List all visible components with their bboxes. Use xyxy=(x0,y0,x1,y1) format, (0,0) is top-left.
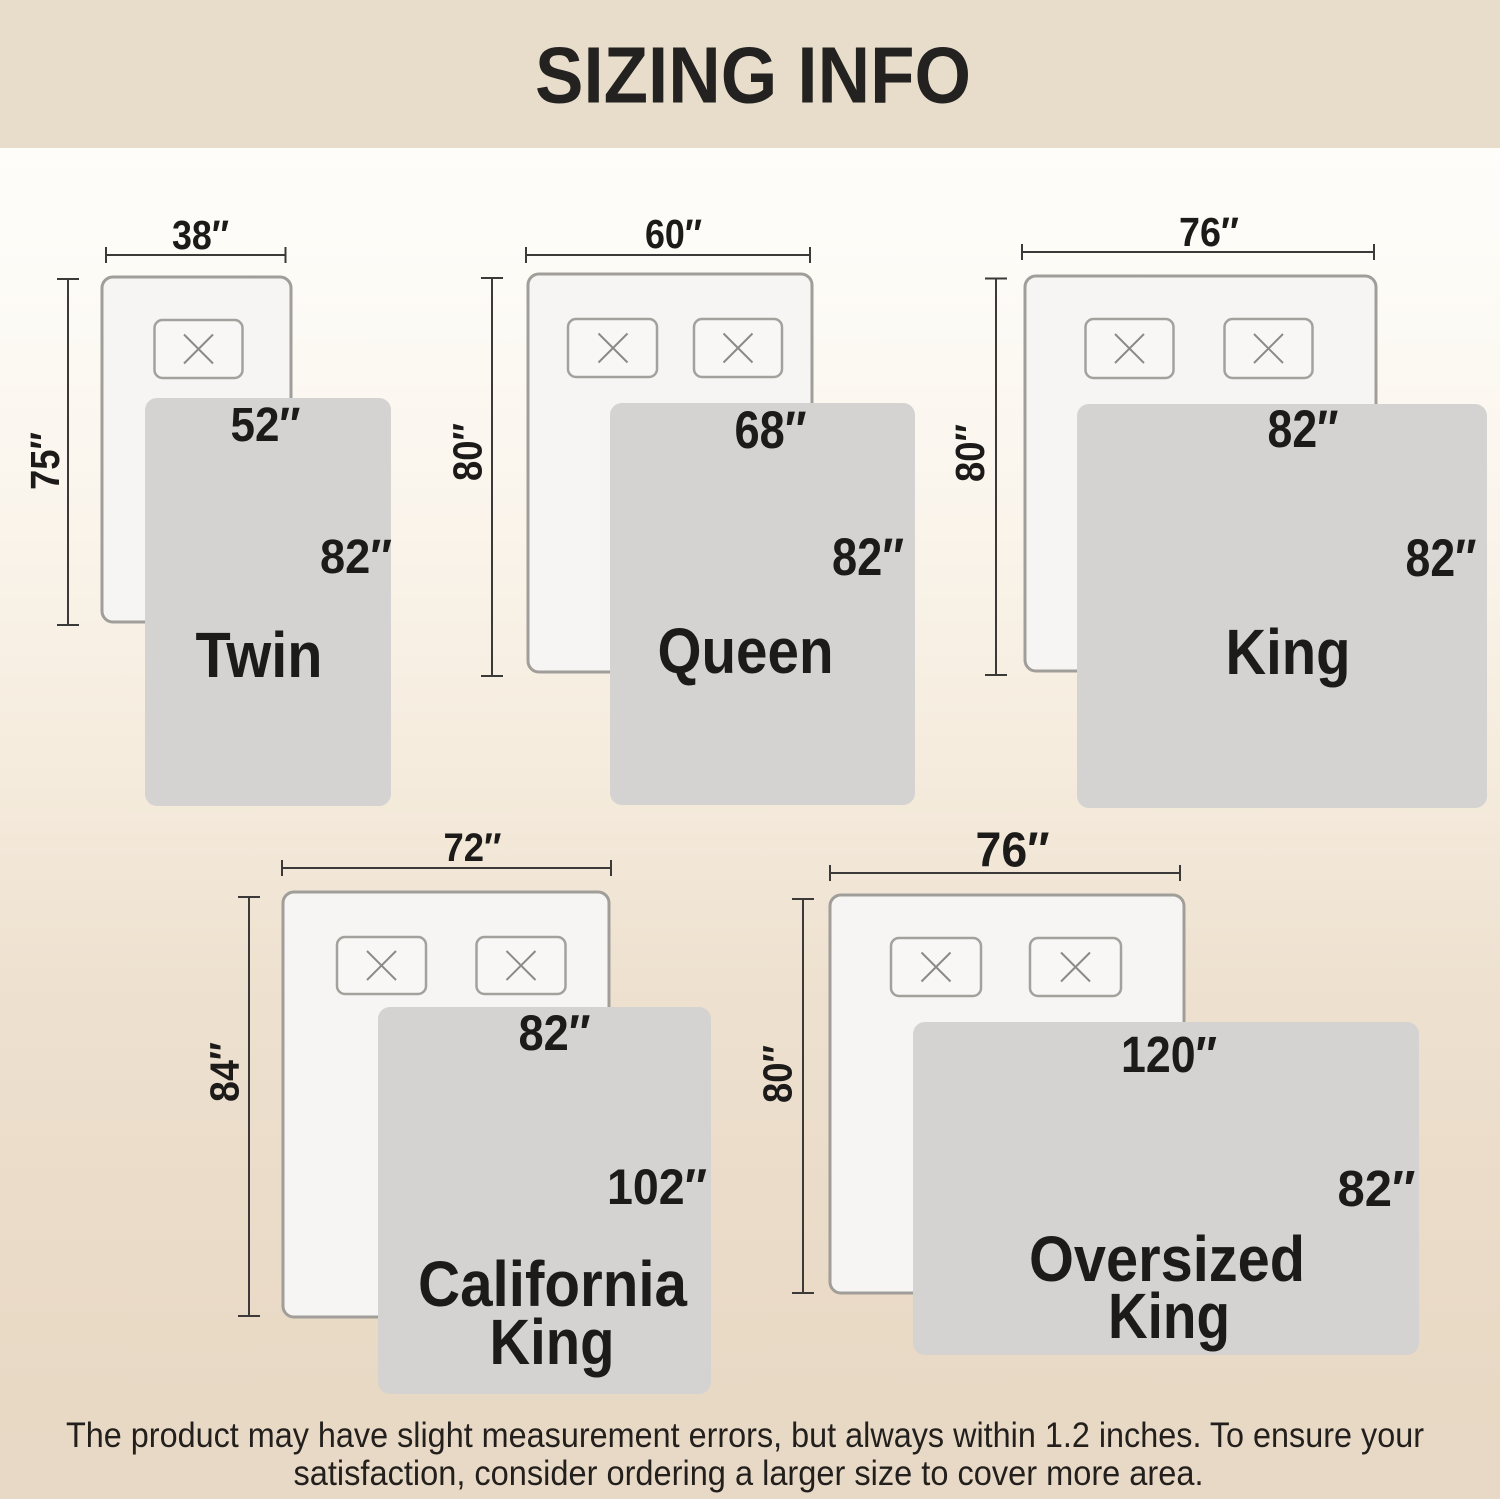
svg-text:120″: 120″ xyxy=(1121,1026,1217,1083)
svg-text:75″: 75″ xyxy=(22,432,68,490)
svg-text:80″: 80″ xyxy=(947,424,993,482)
svg-text:82″: 82″ xyxy=(320,531,392,584)
svg-text:satisfaction, consider orderin: satisfaction, consider ordering a larger… xyxy=(294,1454,1204,1493)
svg-text:68″: 68″ xyxy=(735,401,807,460)
svg-text:102″: 102″ xyxy=(607,1159,707,1215)
svg-text:82″: 82″ xyxy=(832,528,904,587)
svg-text:SIZING INFO: SIZING INFO xyxy=(535,31,971,120)
svg-text:60″: 60″ xyxy=(645,211,702,257)
svg-text:76″: 76″ xyxy=(976,824,1050,878)
svg-text:Queen: Queen xyxy=(658,615,834,687)
svg-text:King: King xyxy=(1226,616,1351,688)
svg-text:King: King xyxy=(1108,1280,1230,1352)
svg-text:72″: 72″ xyxy=(444,826,502,870)
svg-text:82″: 82″ xyxy=(519,1005,591,1061)
svg-text:52″: 52″ xyxy=(231,399,301,452)
svg-text:82″: 82″ xyxy=(1338,1160,1416,1217)
svg-text:76″: 76″ xyxy=(1179,209,1239,255)
svg-text:Twin: Twin xyxy=(196,619,323,691)
svg-text:The product may have slight me: The product may have slight measurement … xyxy=(66,1416,1424,1455)
svg-text:80″: 80″ xyxy=(445,423,491,481)
svg-text:82″: 82″ xyxy=(1406,529,1477,588)
svg-text:82″: 82″ xyxy=(1268,400,1339,459)
svg-text:84″: 84″ xyxy=(202,1042,248,1102)
svg-text:King: King xyxy=(490,1306,615,1378)
svg-text:38″: 38″ xyxy=(172,212,229,258)
svg-text:80″: 80″ xyxy=(755,1045,801,1103)
